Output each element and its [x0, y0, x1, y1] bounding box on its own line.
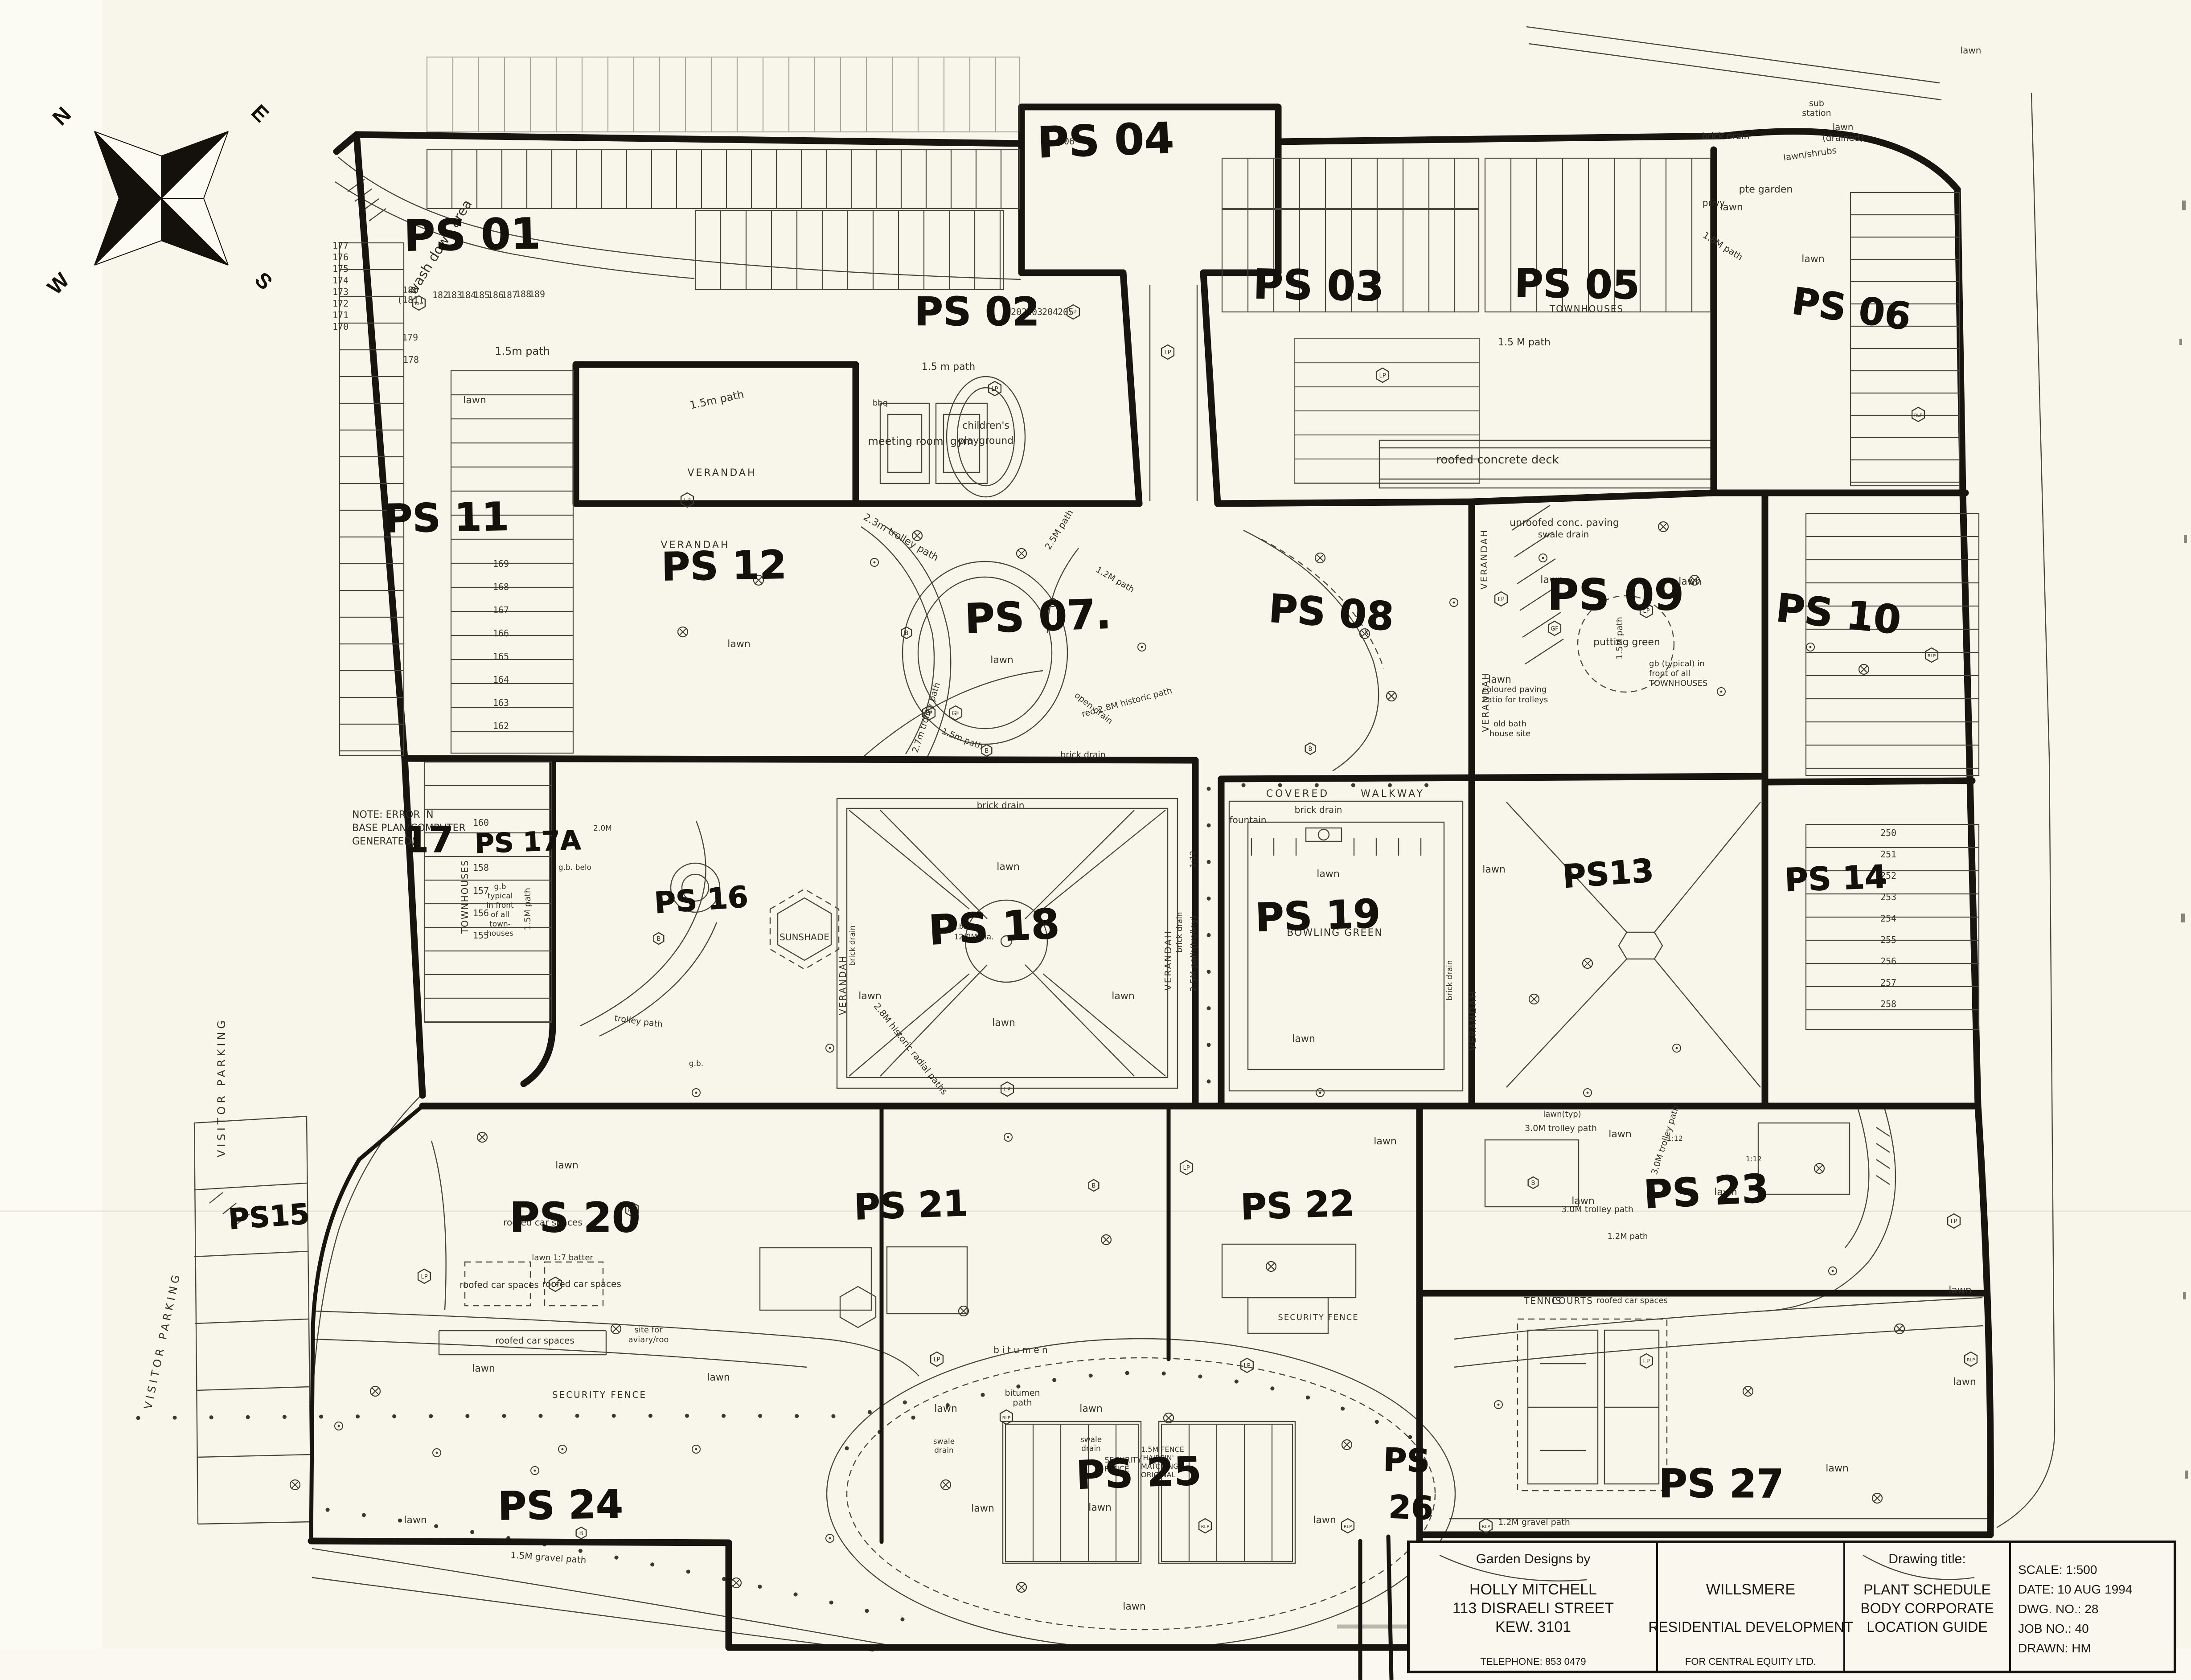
plan-annotation: roofed car spaces: [495, 1335, 574, 1346]
plan-annotation: lawn: [1088, 1502, 1112, 1513]
ps-area-label: PS 04: [1037, 113, 1175, 168]
plan-annotation: lawn: [1313, 1515, 1336, 1526]
ps-area-label: PS 09: [1547, 570, 1684, 620]
lot-number: 158: [473, 862, 489, 873]
ps-area-label: PS 08: [1267, 585, 1395, 639]
title-drawing-heading: Drawing title:: [1888, 1552, 1965, 1566]
plan-annotation: COVERED: [1266, 788, 1329, 799]
plan-annotation: lawn: [472, 1363, 495, 1374]
plan-annotation: lawn 1:7 batter: [532, 1253, 593, 1262]
plan-annotation: lawn: [1079, 1403, 1103, 1414]
plan-annotation: (drained): [1822, 132, 1863, 143]
plan-annotation: drain: [934, 1446, 954, 1455]
plan-annotation: swale drain: [1538, 529, 1589, 540]
plan-annotation: path: [1013, 1398, 1032, 1408]
plan-annotation: town-: [489, 920, 511, 929]
title-drawing-line1: PLANT SCHEDULE: [1863, 1582, 1991, 1598]
plan-annotation: front of all: [1649, 669, 1690, 678]
title-block: Garden Designs by HOLLY MITCHELL 113 DIS…: [1408, 1542, 2175, 1672]
lot-number: 175: [332, 263, 349, 274]
title-dwg-no: DWG. NO.: 28: [2018, 1602, 2098, 1616]
plan-annotation: WALKWAY: [1361, 788, 1425, 799]
ps-area-label: PS 02: [915, 289, 1040, 335]
plan-annotation: brick drain: [848, 926, 857, 966]
title-project-type: RESIDENTIAL DEVELOPMENT: [1648, 1619, 1853, 1635]
lot-number: 169: [493, 558, 509, 569]
lot-number: 164: [493, 674, 509, 685]
lot-number: 162: [493, 721, 509, 731]
plan-annotation: meeting room: [868, 435, 943, 447]
plan-annotation: 1.5 M path: [1498, 337, 1551, 348]
ps-area-label: PS 23: [1642, 1165, 1770, 1218]
plan-annotation: lawn: [858, 991, 882, 1002]
plan-annotation: old bath: [1493, 719, 1526, 729]
paper-background: [0, 0, 2191, 1680]
plan-annotation: VERANDAH: [688, 467, 757, 479]
ps-area-label: PS 24: [497, 1481, 624, 1529]
lot-number: 165: [493, 651, 509, 662]
lot-number: 163: [493, 697, 509, 708]
plan-annotation: lawn: [1292, 1033, 1315, 1045]
plan-annotation: aviary/roo: [628, 1335, 669, 1344]
lot-number: 172: [332, 298, 349, 309]
plan-annotation: lawn: [463, 395, 486, 406]
svg-text:RLP: RLP: [1002, 1416, 1011, 1421]
plan-annotation: Patio for trolleys: [1483, 695, 1548, 705]
plan-annotation: lawn: [727, 639, 751, 650]
plan-annotation: houses: [487, 929, 513, 938]
plan-annotation: lawn: [992, 1017, 1015, 1028]
svg-text:B: B: [905, 630, 909, 637]
title-drawing-line3: LOCATION GUIDE: [1867, 1619, 1987, 1635]
plan-annotation: lawn: [990, 655, 1013, 666]
plan-annotation: lawn: [1826, 1463, 1849, 1474]
plan-annotation: lawn: [1949, 1285, 1972, 1296]
ps-area-label: PS 16: [653, 880, 750, 921]
plan-annotation: fountain: [1230, 815, 1267, 825]
plan-annotation: COURTS: [1551, 1295, 1593, 1306]
plan-annotation: TOWNHOUSES: [1649, 679, 1708, 688]
title-drawn: DRAWN: HM: [2018, 1641, 2091, 1655]
plan-annotation: brick drain: [1175, 912, 1184, 953]
ps-area-label: PS 11: [383, 494, 509, 542]
lot-number: 160: [473, 817, 489, 828]
title-designer-address1: 113 DISRAELI STREET: [1452, 1600, 1614, 1617]
lot-number: 178: [403, 354, 419, 365]
svg-text:GF: GF: [1551, 626, 1559, 632]
plan-annotation: 1:12: [1667, 1134, 1683, 1143]
svg-text:B: B: [985, 748, 989, 754]
svg-text:LP: LP: [1243, 1363, 1250, 1369]
svg-text:LP: LP: [1379, 373, 1386, 379]
plan-annotation: station: [1802, 108, 1831, 118]
plan-annotation: VISITOR PARKING: [215, 1017, 228, 1157]
ps-area-label: PS 20: [509, 1194, 640, 1242]
plan-annotation: brick drain: [1295, 804, 1342, 815]
ps-area-label: PS 21: [853, 1183, 969, 1228]
plan-annotation: SECURITY FENCE: [552, 1389, 647, 1400]
title-project-client: FOR CENTRAL EQUITY LTD.: [1685, 1656, 1816, 1667]
plan-annotation: playground: [958, 435, 1013, 447]
plan-annotation: lawn: [1801, 254, 1825, 265]
ps-area-label: PS 01: [403, 209, 541, 261]
title-designer-phone: TELEPHONE: 853 0479: [1480, 1656, 1586, 1667]
plan-annotation: brick drain: [1702, 131, 1750, 141]
scanned-site-plan-page: N E W S LPLPLPLPLPLPLPLPLPLPLPLPLPLPLPLP…: [0, 0, 2191, 1680]
title-drawing-line2: BODY CORPORATE: [1860, 1600, 1994, 1616]
plan-annotation: swale: [933, 1437, 955, 1446]
svg-text:B: B: [1531, 1180, 1535, 1187]
ps-area-label: PS 07.: [964, 590, 1112, 643]
lot-number: 173: [332, 287, 349, 297]
ps-area-label: PS 27: [1659, 1461, 1784, 1507]
plan-annotation: brick drain: [1445, 960, 1454, 1001]
lot-number: 177: [332, 240, 349, 251]
lot-number: 168: [493, 582, 509, 592]
ps-area-label: PS 03: [1253, 260, 1385, 310]
lot-number: 171: [332, 310, 349, 320]
ps-area-label: 17: [404, 819, 453, 860]
ps-area-label: PS: [1383, 1441, 1430, 1480]
plan-annotation: unroofed conc. paving: [1510, 517, 1619, 529]
ps-area-label: PS 14: [1784, 858, 1888, 899]
plan-annotation: putting green: [1593, 637, 1660, 648]
plan-annotation: site for: [635, 1325, 663, 1335]
svg-text:LP: LP: [1004, 1086, 1010, 1093]
site-plan-drawing: N E W S LPLPLPLPLPLPLPLPLPLPLPLPLPLPLPLP…: [0, 0, 2191, 1680]
lot-number: 170: [332, 321, 349, 332]
svg-text:LP: LP: [1643, 1358, 1649, 1365]
lot-number: 179: [402, 332, 418, 343]
svg-text:LP: LP: [933, 1356, 940, 1363]
ps-area-label: PS 22: [1240, 1183, 1355, 1228]
plan-annotation: lawn: [1374, 1136, 1397, 1147]
svg-text:GF: GF: [952, 710, 960, 717]
plan-annotation: lawn: [1112, 991, 1135, 1002]
plan-annotation: lawn: [971, 1503, 994, 1514]
plan-annotation: pte garden: [1739, 184, 1793, 195]
lot-number: 205: [1058, 307, 1074, 317]
lot-number: 256: [1880, 956, 1896, 967]
svg-text:LP: LP: [684, 497, 690, 504]
ps-area-label: 26: [1388, 1488, 1434, 1527]
svg-text:LP: LP: [1183, 1165, 1190, 1172]
plan-annotation: g.b.: [689, 1059, 703, 1068]
plan-annotation: b i t u m e n: [993, 1344, 1047, 1355]
svg-text:LP: LP: [1498, 596, 1504, 603]
title-scale: SCALE: 1:500: [2018, 1563, 2097, 1577]
plan-annotation: SECURITY FENCE: [1278, 1313, 1358, 1322]
lot-number: 258: [1880, 999, 1896, 1009]
svg-text:RLP: RLP: [1344, 1524, 1352, 1529]
lot-number: 174: [332, 275, 349, 286]
plan-annotation: lawn: [1482, 864, 1506, 875]
lot-number: 254: [1880, 913, 1896, 924]
lot-number: (181): [397, 295, 424, 305]
ps-area-label: PS13: [1561, 852, 1655, 895]
plan-annotation: SUNSHADE: [780, 932, 829, 942]
plan-annotation: lawn: [934, 1403, 957, 1414]
paper-margin-left: [0, 0, 103, 1680]
plan-annotation: lawn: [1961, 45, 1982, 56]
plan-annotation: bbq: [873, 398, 888, 408]
ps-area-label: PS 17A: [474, 825, 582, 860]
title-designer-name: HOLLY MITCHELL: [1469, 1581, 1597, 1598]
ps-area-label: PS 25: [1075, 1448, 1202, 1498]
plan-annotation: lawn: [1720, 202, 1743, 213]
lot-number: 257: [1880, 977, 1896, 988]
plan-annotation: VERANDAH: [1479, 529, 1489, 590]
plan-annotation: sub: [1809, 98, 1824, 108]
lot-number: 166: [493, 628, 509, 639]
plan-annotation: of all: [491, 910, 509, 919]
plan-annotation: VERANDAH: [1163, 930, 1173, 991]
title-project-name: WILLSMERE: [1706, 1581, 1795, 1598]
plan-annotation: coloured paving: [1482, 685, 1547, 694]
plan-annotation: lawn: [1571, 1196, 1595, 1207]
svg-text:LP: LP: [991, 386, 998, 393]
plan-annotation: g.b: [494, 882, 506, 891]
plan-annotation: lawn: [1953, 1377, 1976, 1388]
plan-annotation: typical: [488, 892, 513, 901]
plan-annotation: 2.0M: [593, 824, 612, 833]
lot-number: 204: [1042, 307, 1058, 317]
lot-number: 255: [1880, 934, 1896, 945]
plan-annotation: 1:12: [1189, 851, 1198, 868]
plan-annotation: brick drain: [977, 800, 1025, 811]
plan-annotation: lawn: [1488, 674, 1511, 685]
title-designer-address2: KEW. 3101: [1495, 1619, 1571, 1635]
plan-annotation: lawn: [404, 1515, 427, 1526]
plan-annotation: 1.5M path: [1615, 617, 1625, 660]
plan-annotation: 1.5 m path: [922, 361, 975, 373]
svg-text:B: B: [1092, 1183, 1096, 1189]
plan-annotation: roofed car spaces: [542, 1278, 621, 1289]
lot-number: 167: [493, 605, 509, 615]
svg-text:B: B: [657, 936, 661, 942]
ps-area-label: PS15: [227, 1198, 311, 1237]
svg-text:RLP: RLP: [1482, 1524, 1490, 1529]
plan-annotation: in front: [486, 901, 514, 910]
svg-text:RLP: RLP: [1201, 1524, 1210, 1529]
plan-annotation: 1.5m path: [495, 345, 550, 357]
plan-annotation: lawn: [1317, 869, 1340, 880]
plan-annotation: g.b. belo: [558, 863, 591, 872]
svg-text:RLP: RLP: [1967, 1358, 1975, 1363]
plan-annotation: lawn: [997, 861, 1020, 873]
plan-annotation: roofed concrete deck: [1436, 453, 1559, 467]
plan-annotation: 2.5M path(trolley): [1189, 916, 1198, 992]
svg-text:B: B: [1309, 746, 1313, 753]
plan-annotation: gb (typical) in: [1649, 659, 1705, 668]
plan-annotation: lawn: [1123, 1601, 1146, 1612]
plan-annotation: children's: [962, 420, 1009, 431]
svg-text:RLP: RLP: [1914, 413, 1923, 418]
plan-annotation: lawn: [1833, 122, 1854, 132]
title-designer-heading: Garden Designs by: [1476, 1552, 1591, 1566]
plan-annotation: VERANDAH: [1468, 990, 1478, 1051]
plan-annotation: lawn: [1608, 1129, 1632, 1140]
ps-area-label: PS 05: [1514, 260, 1640, 308]
svg-text:LP: LP: [421, 1274, 427, 1280]
plan-annotation: lawn(typ): [1543, 1110, 1581, 1119]
plan-annotation: roofed car spaces: [460, 1279, 539, 1290]
ps-area-label: PS 18: [927, 900, 1061, 954]
svg-text:LP: LP: [1164, 349, 1171, 356]
plan-annotation: house site: [1489, 729, 1531, 738]
ps-area-label: PS 19: [1255, 890, 1381, 941]
plan-annotation: 1.5M path: [523, 888, 533, 930]
plan-annotation: lawn: [707, 1372, 730, 1383]
svg-text:B: B: [579, 1530, 583, 1537]
plan-annotation: roofed car spaces: [1596, 1296, 1668, 1305]
plan-annotation: swale: [1080, 1435, 1102, 1444]
svg-text:RLP: RLP: [1928, 654, 1936, 659]
lot-number: 157: [473, 885, 489, 896]
plan-annotation: 1.2M gravel path: [1498, 1517, 1570, 1527]
plan-annotation: 3.0M trolley path: [1525, 1123, 1597, 1133]
title-job-no: JOB NO.: 40: [2018, 1622, 2089, 1635]
plan-annotation: lawn: [555, 1160, 579, 1171]
plan-annotation: VERANDAH: [837, 955, 848, 1015]
plan-annotation: 1.2M path: [1608, 1232, 1648, 1241]
lot-number: 189: [529, 289, 545, 299]
plan-annotation: bitumen: [1005, 1388, 1040, 1398]
title-date: DATE: 10 AUG 1994: [2018, 1582, 2132, 1596]
svg-text:LP: LP: [1950, 1218, 1957, 1225]
lot-number: 250: [1880, 828, 1896, 838]
ps-area-label: PS 12: [661, 542, 787, 590]
plan-annotation: 1:12: [1746, 1155, 1762, 1163]
plan-annotation: brick drain: [1060, 750, 1105, 760]
lot-number: 176: [332, 252, 349, 262]
plan-annotation: TOWNHOUSES: [460, 860, 470, 934]
